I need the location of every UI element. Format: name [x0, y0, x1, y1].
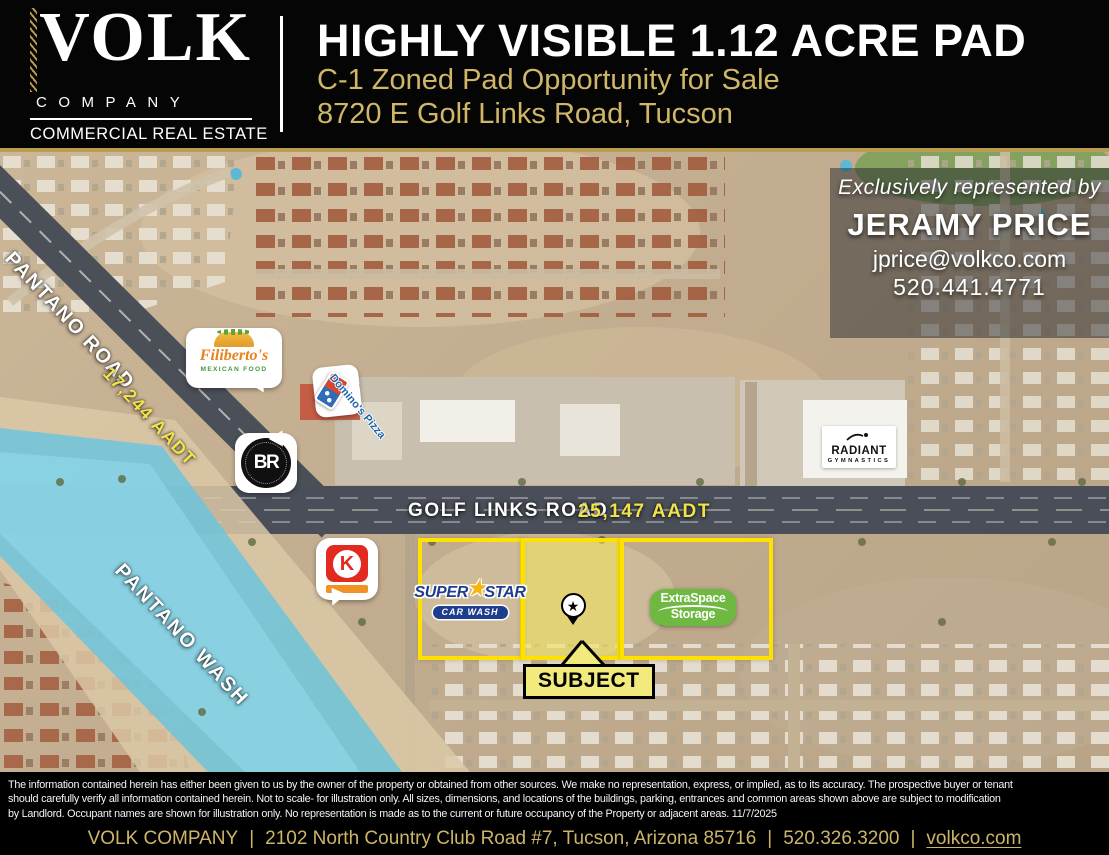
logo-company: COMPANY: [36, 94, 252, 111]
volk-logo: VOLK COMPANY COMMERCIAL REAL ESTATE: [30, 5, 252, 144]
footer-phone: 520.326.3200: [783, 828, 899, 850]
extraspace-line2: Storage: [652, 608, 734, 622]
super-star-car-wash-logo: SUPER ★ STAR CAR WASH: [424, 584, 516, 620]
radiant-line1: RADIANT: [822, 446, 896, 458]
taco-icon: [214, 332, 254, 347]
logo-hatch-icon: [30, 8, 37, 92]
golf-links-road-aadt: 25,147 AADT: [578, 501, 711, 523]
superstar-carwash-label: CAR WASH: [433, 606, 508, 620]
header: VOLK COMPANY COMMERCIAL REAL ESTATE HIGH…: [0, 0, 1109, 152]
radiant-line2: GYMNASTICS: [822, 458, 896, 466]
superstar-word1: SUPER: [414, 584, 468, 602]
footer: VOLK COMPANY | 2102 North Country Club R…: [0, 822, 1109, 855]
disclaimer: The information contained herein has eit…: [0, 772, 1109, 822]
dominos-logo: Domino's Pizza: [312, 364, 363, 419]
circle-k-bar: [326, 585, 368, 593]
footer-company: VOLK COMPANY: [88, 828, 239, 850]
agent-email-link[interactable]: jprice@volkco.com: [873, 246, 1066, 273]
logo-tagline: COMMERCIAL REAL ESTATE: [30, 125, 252, 144]
header-divider: [280, 16, 283, 132]
flyer-page: VOLK COMPANY COMMERCIAL REAL ESTATE HIGH…: [0, 0, 1109, 855]
aerial-map: Exclusively represented by JERAMY PRICE …: [0, 152, 1109, 772]
footer-separator: |: [910, 828, 915, 850]
disclaimer-line-3: by Landlord. Occupant names are shown fo…: [8, 807, 1109, 821]
star-icon: ★: [467, 576, 486, 601]
filibertos-tagline: MEXICAN FOOD: [186, 366, 282, 373]
logo-wordmark: VOLK: [39, 5, 252, 72]
disclaimer-line-1: The information contained herein has eit…: [8, 778, 1109, 792]
footer-address: 2102 North Country Club Road #7, Tucson,…: [265, 828, 756, 850]
br-monogram: BR: [241, 438, 291, 488]
extraspace-storage-logo: ExtraSpace Storage: [650, 589, 736, 626]
page-subtitle-1: C-1 Zoned Pad Opportunity for Sale: [317, 65, 1026, 96]
page-title: HIGHLY VISIBLE 1.12 ACRE PAD: [317, 18, 1026, 63]
br-circle-icon: BR: [241, 438, 291, 488]
filibertos-name: Filiberto's: [186, 348, 282, 365]
disclaimer-line-2: should carefully verify all information …: [8, 792, 1109, 806]
circle-k-logo: K: [316, 538, 378, 600]
star-icon: ★: [567, 599, 580, 613]
superstar-word2: STAR: [485, 584, 526, 602]
black-rock-coffee-logo: BR: [235, 433, 297, 493]
logo-divider: [30, 118, 252, 120]
circle-k-letter: K: [340, 554, 354, 574]
agent-intro: Exclusively represented by: [838, 176, 1101, 200]
extraspace-line1: ExtraSpace: [652, 592, 734, 606]
footer-separator: |: [767, 828, 772, 850]
subject-callout: SUBJECT: [523, 664, 655, 699]
agent-info-panel: Exclusively represented by JERAMY PRICE …: [830, 168, 1109, 338]
gymnast-icon: [844, 432, 874, 441]
subject-pin-icon: ★: [560, 593, 586, 625]
footer-separator: |: [249, 828, 254, 850]
subject-callout-pointer: [558, 639, 614, 666]
page-subtitle-2: 8720 E Golf Links Road, Tucson: [317, 99, 1026, 130]
radiant-gymnastics-logo: RADIANT GYMNASTICS: [822, 426, 896, 468]
footer-website-link[interactable]: volkco.com: [926, 828, 1021, 850]
filibertos-logo: Filiberto's MEXICAN FOOD: [186, 328, 282, 388]
circle-k-icon: K: [326, 545, 368, 582]
agent-phone: 520.441.4771: [893, 274, 1046, 301]
agent-name: JERAMY PRICE: [848, 207, 1092, 243]
